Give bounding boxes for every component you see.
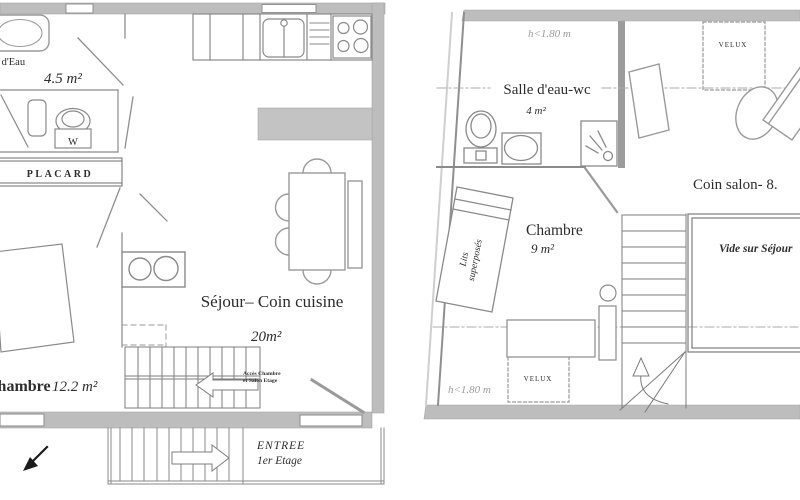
right-bathroom-fixtures (464, 111, 617, 166)
living-label: Séjour– Coin cuisine (201, 292, 344, 311)
velux-bottom-label: VELUX (524, 375, 553, 383)
wall-left-outer (426, 13, 452, 405)
salon-furniture (629, 59, 800, 146)
desk-bottom (507, 320, 595, 357)
closet-label: PLACARD (27, 169, 93, 180)
stairs-note-line1: Accès Chambre (243, 371, 281, 377)
dining-set (276, 159, 363, 284)
wall-bottom-right-plan (424, 405, 800, 419)
height-note-bottom: h<1.80 m (448, 384, 491, 396)
wc-door-swing (1, 95, 28, 147)
interior-staircase (125, 347, 260, 408)
wall-right (372, 3, 384, 413)
shelf-tilted (629, 64, 669, 138)
wc-label: W (68, 137, 78, 148)
wall-top (0, 3, 385, 14)
window-bottom-right (300, 415, 362, 426)
bathroom-label-right: Salle d'eau-wc (503, 82, 591, 98)
kitchen-counter (193, 14, 372, 60)
void-over-living (688, 214, 800, 352)
wall-top-right-plan (462, 10, 800, 21)
floor-plan-right: VELUX (424, 10, 800, 419)
floor-plans-canvas: W PLACARD (0, 0, 800, 500)
floor-plan-left: W PLACARD (0, 3, 385, 484)
window-top-left (66, 4, 93, 13)
entrance-area (381, 428, 384, 484)
bedroom-area-left: 12.2 m² (52, 379, 98, 395)
chair-top (303, 159, 331, 173)
dining-table (289, 173, 345, 270)
entrance-line2: 1er Etage (257, 455, 302, 467)
bathroom-area-right: 4 m² (526, 105, 546, 117)
bathroom-label-left: Salle d'Eau (0, 57, 26, 68)
bench (348, 181, 362, 268)
living-area: 20m² (251, 329, 282, 345)
under-stair-dashed (122, 325, 166, 347)
kitchen-sink (263, 19, 304, 57)
chair-left-1 (276, 194, 290, 221)
bathtub (0, 15, 49, 51)
chair-left-2 (276, 228, 290, 255)
wood-stove (122, 252, 185, 287)
wc-room (0, 90, 118, 152)
stair-arrow-curve (641, 374, 668, 404)
entrance-line1: ENTREE (256, 440, 305, 452)
bedroom-label-right: Chambre (526, 222, 583, 239)
stairs-note-line2: et Salon Etage (243, 378, 278, 384)
floor-plan-page: W PLACARD (0, 0, 800, 500)
exterior-staircase (108, 428, 384, 484)
bathroom-door (585, 168, 617, 212)
height-note-top: h<1.80 m (528, 28, 571, 40)
bed (0, 244, 74, 352)
salon-label: Coin salon- 8. (693, 177, 778, 193)
window-bottom-left (0, 414, 44, 426)
bedroom-label-left: Chambre (0, 378, 51, 395)
orientation-arrow (23, 447, 47, 471)
wall-flue (258, 108, 372, 140)
velux-top-label: VELUX (719, 41, 748, 49)
window-top-kitchen (262, 5, 316, 13)
chair-bottom (303, 270, 331, 284)
void-label: Vide sur Séjour (719, 243, 793, 255)
entry-door (312, 380, 363, 412)
stair-arrow-up (633, 358, 649, 376)
toilet-right (464, 111, 497, 163)
shower (581, 121, 617, 166)
right-staircase (620, 214, 686, 412)
bedroom-area-right: 9 m² (531, 241, 555, 256)
bathroom-area-left: 4.5 m² (44, 71, 82, 87)
velux-top-window (703, 22, 765, 90)
stove-hob (333, 16, 371, 58)
shelf-and-post (599, 285, 616, 360)
wc-cabinet (28, 100, 46, 136)
washbasin (502, 133, 541, 164)
wall-bathroom-right (618, 21, 625, 168)
